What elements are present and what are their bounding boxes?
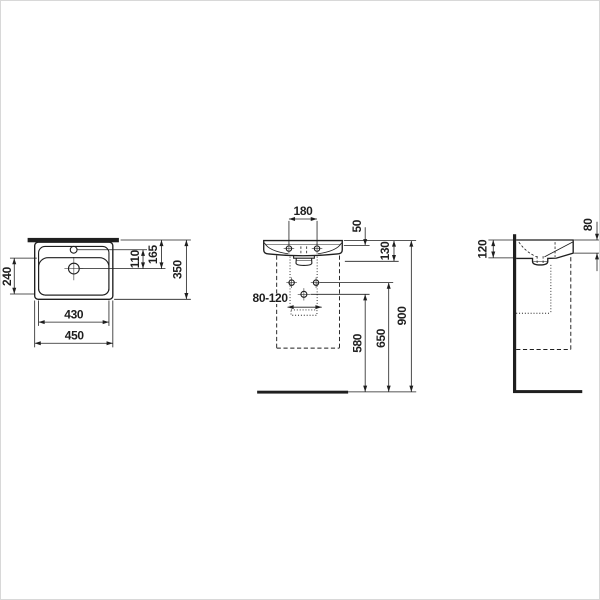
dim-label-supply-spacing: 80-120 — [253, 291, 289, 305]
dim-plan-bowl-depth: 240 — [1, 258, 37, 294]
dim-front-floor-to-waste: 580 — [310, 294, 369, 392]
front-waste-outlet-hole — [298, 288, 310, 300]
front-drain-fitting — [294, 256, 315, 265]
dim-front-rim-to-outlet-bottom: 130 — [344, 241, 416, 262]
dim-label-rim-to-outlet-bottom: 130 — [378, 241, 392, 261]
dim-label-bowl-width: 430 — [64, 308, 84, 322]
side-view: 120 80 — [475, 218, 599, 393]
dim-label-overall-width: 450 — [65, 329, 85, 343]
dim-label-overall-depth: 350 — [170, 259, 184, 279]
dim-side-rear-height: 120 — [475, 239, 516, 259]
dim-label-rear-height: 120 — [475, 239, 489, 259]
side-waste-route-dotted — [516, 265, 551, 313]
plan-tap-hole — [70, 246, 77, 253]
plan-view: 240 430 450 110 165 350 — [1, 238, 191, 347]
side-floor-line — [513, 390, 582, 393]
dim-label-fixing-hole-spacing: 180 — [294, 204, 314, 218]
dim-plan-bowl-width: 430 — [39, 300, 109, 325]
side-bowl-back-curve-dashed — [519, 242, 539, 257]
side-concealed-box-dashed — [516, 257, 571, 349]
side-basin-profile — [516, 240, 573, 265]
front-view: 180 50 130 80-120 580 650 — [251, 204, 416, 394]
dim-label-tap-to-drain: 110 — [128, 249, 142, 268]
dim-label-rim-to-fixing: 50 — [350, 219, 364, 232]
front-basin-outline — [264, 241, 343, 256]
front-supply-hole-right — [311, 277, 322, 288]
dim-side-front-edge-height: 80 — [574, 218, 599, 271]
dim-label-floor-to-waste: 580 — [351, 333, 365, 353]
dim-front-supply-spacing: 80-120 — [251, 291, 322, 307]
dim-label-floor-to-supply: 650 — [374, 328, 388, 348]
dim-label-floor-to-rim: 900 — [395, 306, 409, 326]
dim-front-floor-to-rim: 900 — [395, 241, 411, 392]
dim-front-rim-to-fixing: 50 — [344, 219, 370, 245]
washbasin-dimension-drawing: 240 430 450 110 165 350 — [1, 1, 599, 599]
front-supply-hole-left — [286, 277, 297, 288]
dim-front-fixing-hole-spacing: 180 — [289, 204, 317, 245]
dim-label-rear-to-drain: 165 — [146, 245, 160, 265]
dim-label-bowl-depth: 240 — [1, 266, 14, 286]
front-floor-line — [257, 391, 348, 394]
dim-label-front-edge-height: 80 — [581, 218, 595, 231]
technical-drawing-canvas: 240 430 450 110 165 350 — [0, 0, 600, 600]
